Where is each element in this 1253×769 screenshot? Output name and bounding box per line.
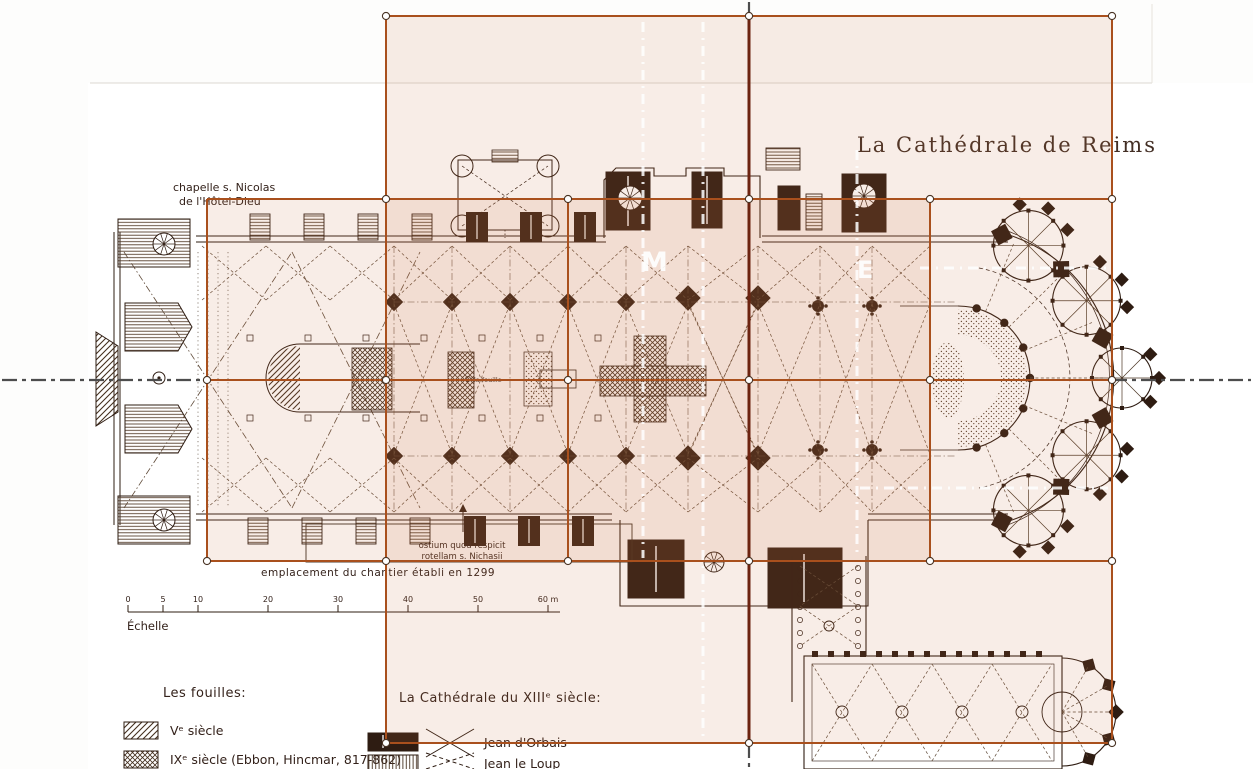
resize-handle[interactable] xyxy=(382,557,389,564)
resize-handle[interactable] xyxy=(926,557,933,564)
scale-tick-label: 20 xyxy=(263,595,273,604)
resize-handle[interactable] xyxy=(745,12,752,19)
resize-handle[interactable] xyxy=(1108,12,1115,19)
resize-handle[interactable] xyxy=(564,376,571,383)
scale-tick-label: 10 xyxy=(193,595,203,604)
cathedral-plan-svg: La Cathédrale de Reims chapelle s. Nicol… xyxy=(0,0,1253,769)
resize-handle[interactable] xyxy=(382,376,389,383)
resize-handle[interactable] xyxy=(745,376,752,383)
resize-handle[interactable] xyxy=(926,195,933,202)
legend-item-label: IXᵉ siècle (Ebbon, Hincmar, 817-862) xyxy=(170,752,401,767)
resize-handle[interactable] xyxy=(745,557,752,564)
plan-letter-m: M xyxy=(641,247,668,278)
resize-handle[interactable] xyxy=(382,195,389,202)
resize-handle[interactable] xyxy=(745,739,752,746)
chapelle-label-line1: chapelle s. Nicolas xyxy=(173,181,275,194)
scale-tick-label: 5 xyxy=(160,595,165,604)
scanned-plan-canvas: La Cathédrale de Reims chapelle s. Nicol… xyxy=(0,0,1253,769)
resize-handle[interactable] xyxy=(1108,195,1115,202)
resize-handle[interactable] xyxy=(203,557,210,564)
legend-swatch-vertical-hatch xyxy=(368,755,418,769)
resize-handle[interactable] xyxy=(203,376,210,383)
resize-handle[interactable] xyxy=(1108,557,1115,564)
resize-handle[interactable] xyxy=(1108,739,1115,746)
scale-label: Échelle xyxy=(127,618,168,633)
legend-swatch-diagonal-hatch xyxy=(124,722,158,739)
resize-handle[interactable] xyxy=(745,195,752,202)
scale-tick-label: 30 xyxy=(333,595,343,604)
west-pier-north xyxy=(125,303,192,351)
resize-handle[interactable] xyxy=(382,12,389,19)
west-pier-south xyxy=(125,405,192,453)
resize-handle[interactable] xyxy=(382,739,389,746)
resize-handle[interactable] xyxy=(564,195,571,202)
resize-handle[interactable] xyxy=(926,376,933,383)
scale-tick-label: 0 xyxy=(125,595,130,604)
legend-swatch-cross-hatch xyxy=(124,751,158,768)
resize-handle[interactable] xyxy=(1108,376,1115,383)
resize-handle[interactable] xyxy=(564,557,571,564)
legend-item-label: Vᵉ siècle xyxy=(170,723,224,738)
legend-fouilles-heading: Les fouilles: xyxy=(163,686,246,701)
legend-item-label: Jean le Loup xyxy=(483,756,560,769)
plan-letter-e: E xyxy=(857,256,873,284)
